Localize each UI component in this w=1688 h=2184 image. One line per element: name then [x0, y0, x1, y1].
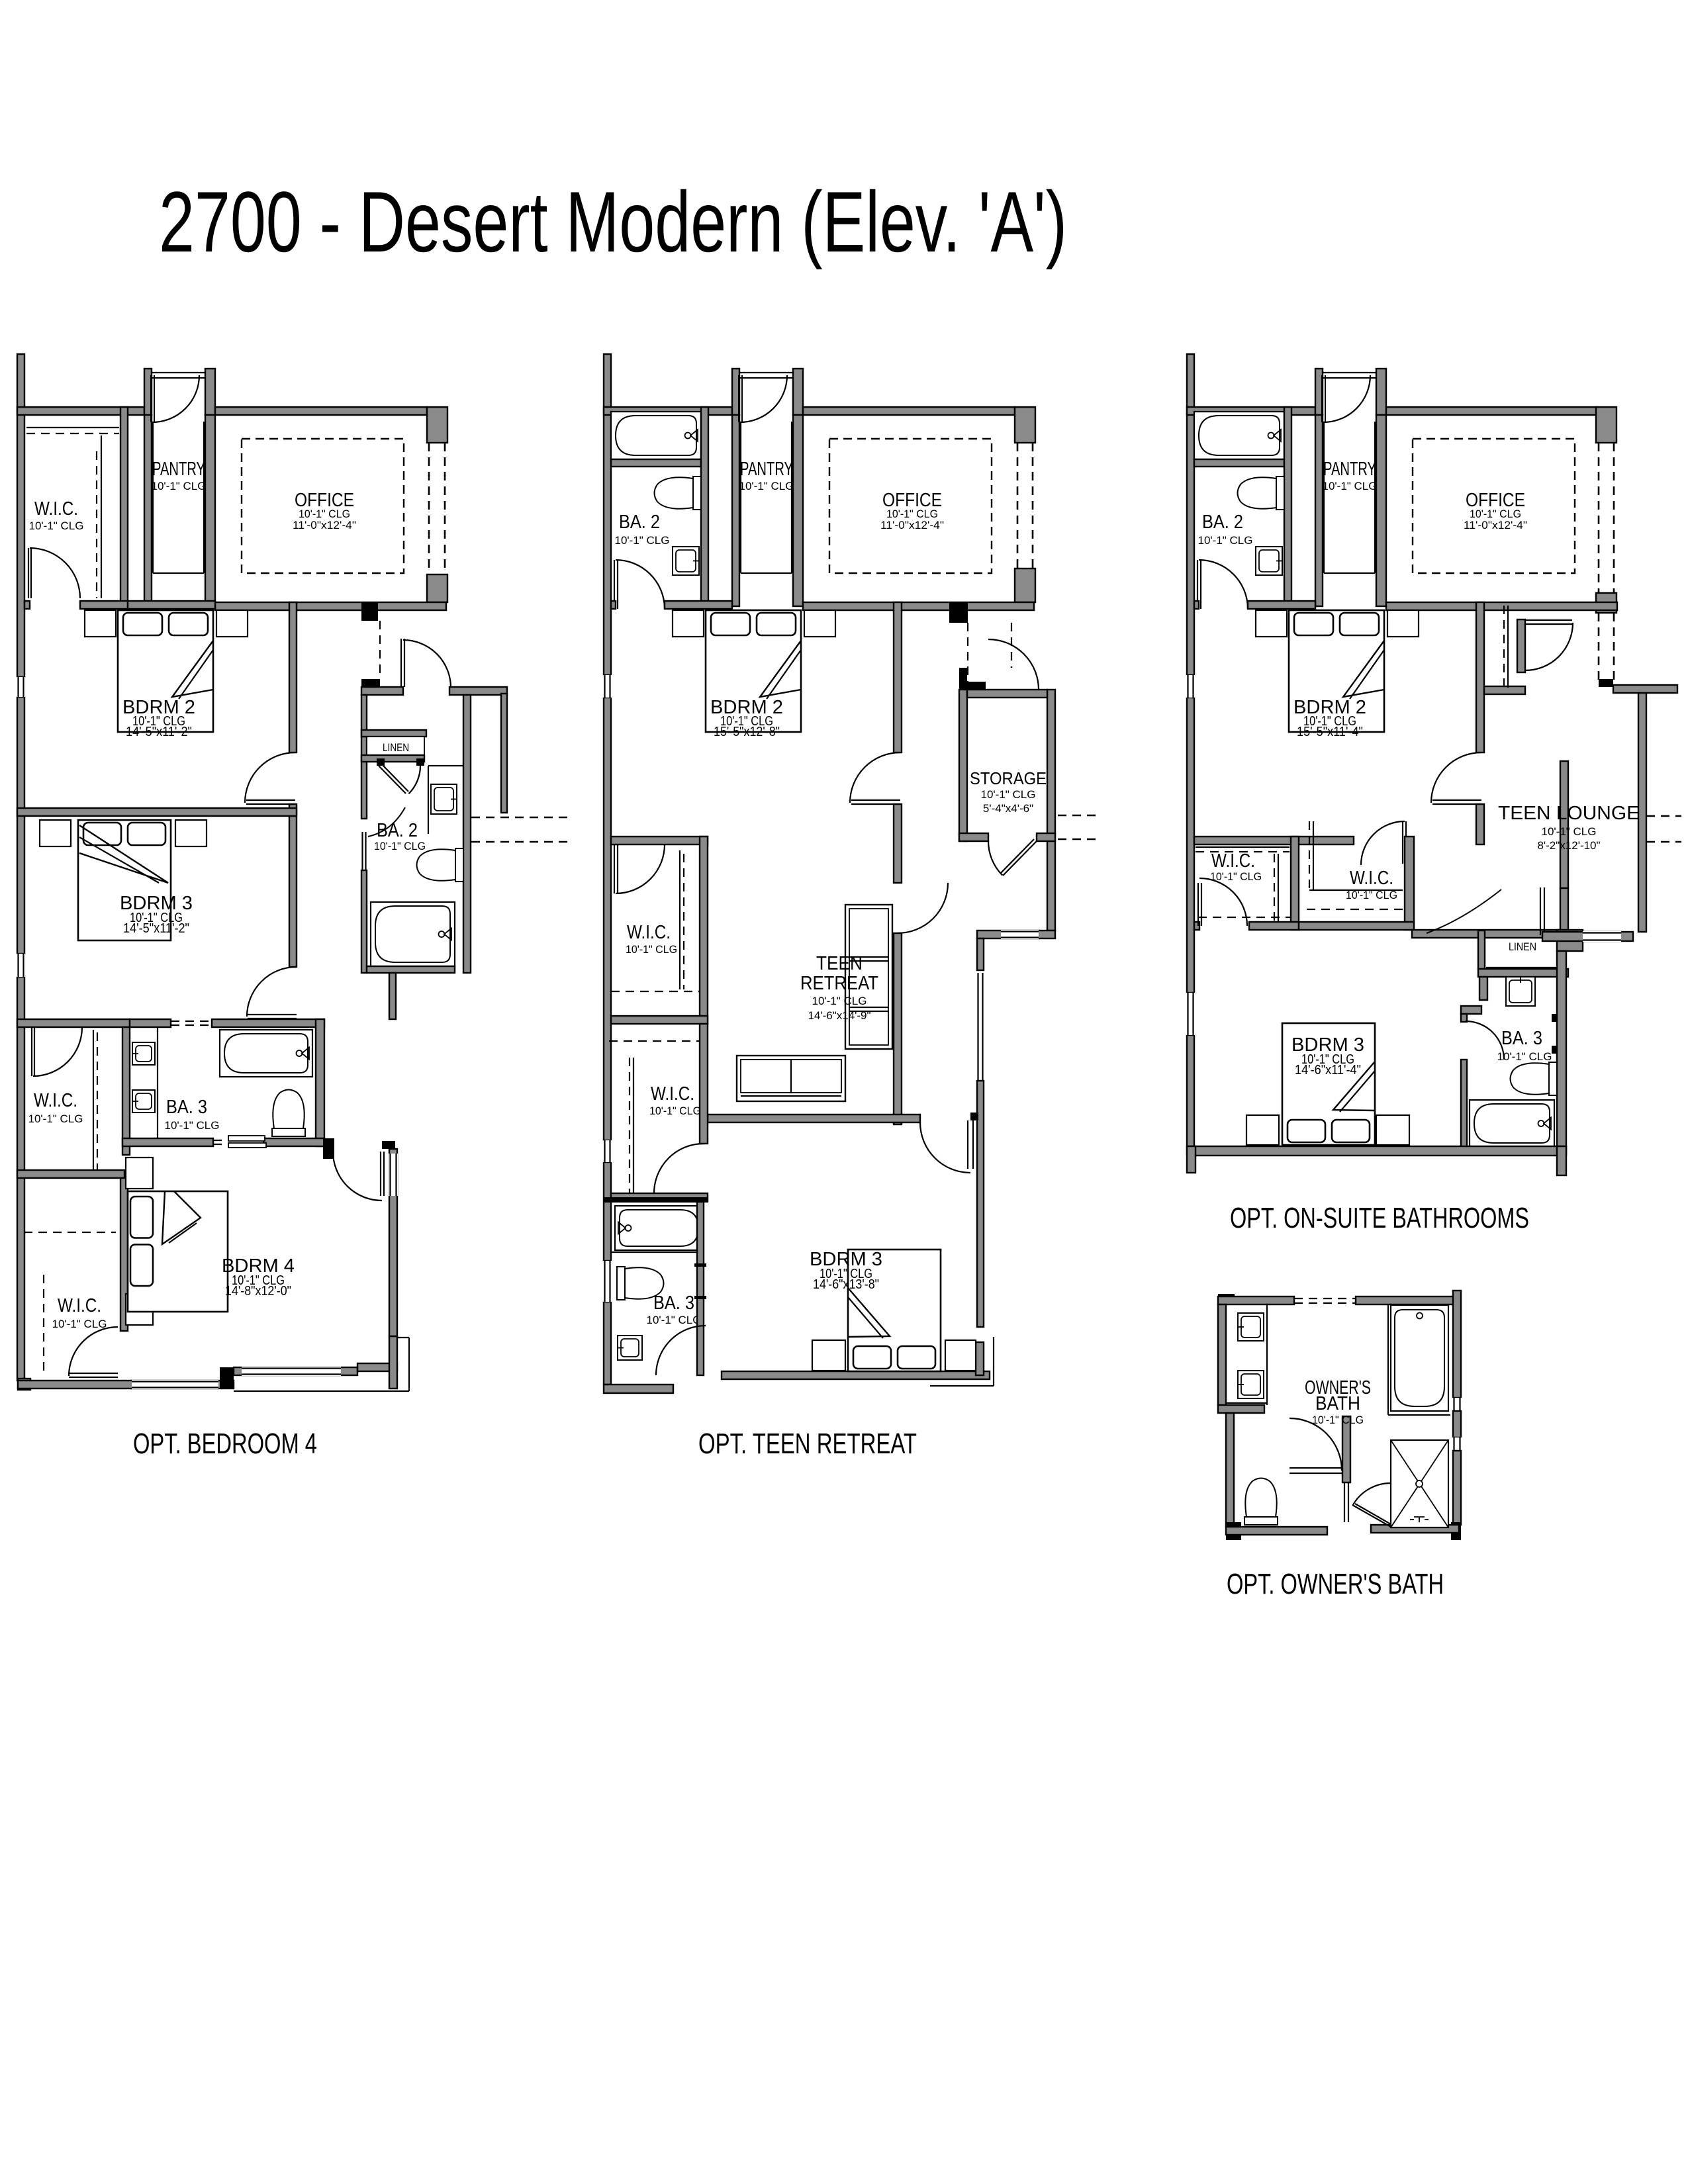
svg-text:11'-0"x12'-4": 11'-0"x12'-4" [1464, 519, 1527, 531]
svg-text:10'-1" CLG: 10'-1" CLG [1542, 825, 1597, 838]
svg-text:LINEN: LINEN [383, 741, 409, 754]
svg-text:2700 - Desert Modern (Elev. 'A: 2700 - Desert Modern (Elev. 'A') [159, 173, 1067, 270]
svg-text:OPT. OWNER'S BATH: OPT. OWNER'S BATH [1227, 1568, 1444, 1600]
svg-text:PANTRY: PANTRY [1323, 459, 1376, 480]
svg-text:10'-1" CLG: 10'-1" CLG [615, 534, 670, 547]
svg-text:10'-1" CLG: 10'-1" CLG [52, 1318, 107, 1330]
svg-text:OPT. TEEN RETREAT: OPT. TEEN RETREAT [698, 1428, 917, 1460]
svg-text:10'-1" CLG: 10'-1" CLG [1497, 1050, 1552, 1063]
svg-text:LINEN: LINEN [1509, 940, 1536, 953]
svg-text:W.I.C.: W.I.C. [58, 1295, 101, 1316]
svg-text:14'-6"x14'-9": 14'-6"x14'-9" [808, 1009, 870, 1022]
svg-text:14'-6"x11'-4": 14'-6"x11'-4" [1295, 1063, 1361, 1077]
svg-text:PANTRY: PANTRY [152, 459, 205, 480]
svg-text:10'-1" CLG: 10'-1" CLG [649, 1105, 701, 1117]
svg-text:TEEN LOUNGE: TEEN LOUNGE [1498, 803, 1640, 824]
svg-text:10'-1" CLG: 10'-1" CLG [981, 788, 1036, 801]
svg-text:W.I.C.: W.I.C. [34, 1090, 77, 1111]
svg-text:BA. 3: BA. 3 [653, 1293, 694, 1314]
svg-text:10'-1" CLG: 10'-1" CLG [1198, 534, 1253, 547]
svg-text:15'-5"x12'-8": 15'-5"x12'-8" [714, 725, 780, 739]
svg-text:10'-1" CLG: 10'-1" CLG [1312, 1414, 1364, 1426]
svg-text:14'-8"x12'-0": 14'-8"x12'-0" [225, 1284, 291, 1298]
svg-text:5'-4"x4'-6": 5'-4"x4'-6" [983, 802, 1033, 815]
svg-text:BATH: BATH [1315, 1393, 1360, 1414]
svg-text:10'-1" CLG: 10'-1" CLG [739, 480, 794, 492]
svg-text:W.I.C.: W.I.C. [34, 498, 78, 520]
svg-text:W.I.C.: W.I.C. [627, 922, 671, 943]
svg-text:8'-2"x12'-10": 8'-2"x12'-10" [1537, 839, 1600, 852]
svg-text:10'-1" CLG: 10'-1" CLG [626, 943, 677, 956]
svg-text:10'-1" CLG: 10'-1" CLG [28, 1113, 83, 1125]
svg-text:11'-0"x12'-4": 11'-0"x12'-4" [293, 519, 356, 531]
svg-text:11'-0"x12'-4": 11'-0"x12'-4" [880, 519, 944, 531]
svg-text:W.I.C.: W.I.C. [651, 1083, 694, 1105]
svg-text:PANTRY: PANTRY [740, 459, 793, 480]
svg-text:W.I.C.: W.I.C. [1350, 868, 1393, 889]
svg-text:BA. 3: BA. 3 [166, 1097, 207, 1118]
svg-text:10'-1" CLG: 10'-1" CLG [1346, 889, 1397, 901]
svg-text:15'-5"x11'-4": 15'-5"x11'-4" [1297, 725, 1363, 739]
svg-text:10'-1" CLG: 10'-1" CLG [165, 1119, 220, 1132]
svg-text:RETREAT: RETREAT [800, 973, 878, 994]
svg-text:10'-1" CLG: 10'-1" CLG [29, 520, 84, 532]
svg-text:BA. 2: BA. 2 [377, 820, 418, 841]
svg-text:OPT. ON-SUITE BATHROOMS: OPT. ON-SUITE BATHROOMS [1230, 1202, 1529, 1234]
svg-text:STORAGE: STORAGE [970, 768, 1047, 788]
svg-text:14'-5"x11'-2": 14'-5"x11'-2" [123, 921, 189, 936]
svg-text:14'-6"x13'-8": 14'-6"x13'-8" [813, 1277, 879, 1292]
svg-text:10'-1" CLG: 10'-1" CLG [812, 995, 867, 1007]
svg-text:BA. 3: BA. 3 [1501, 1028, 1542, 1049]
svg-text:OPT. BEDROOM 4: OPT. BEDROOM 4 [133, 1428, 317, 1460]
svg-text:BA. 2: BA. 2 [1202, 512, 1243, 533]
svg-text:W.I.C.: W.I.C. [1211, 850, 1255, 872]
svg-text:10'-1" CLG: 10'-1" CLG [152, 480, 207, 492]
svg-text:BA. 2: BA. 2 [619, 512, 660, 533]
svg-text:14'-5"x11'-2": 14'-5"x11'-2" [126, 725, 192, 739]
svg-text:10'-1" CLG: 10'-1" CLG [1323, 480, 1378, 492]
svg-text:10'-1" CLG: 10'-1" CLG [647, 1314, 702, 1326]
svg-text:10'-1" CLG: 10'-1" CLG [374, 840, 426, 852]
svg-text:TEEN: TEEN [816, 953, 863, 974]
